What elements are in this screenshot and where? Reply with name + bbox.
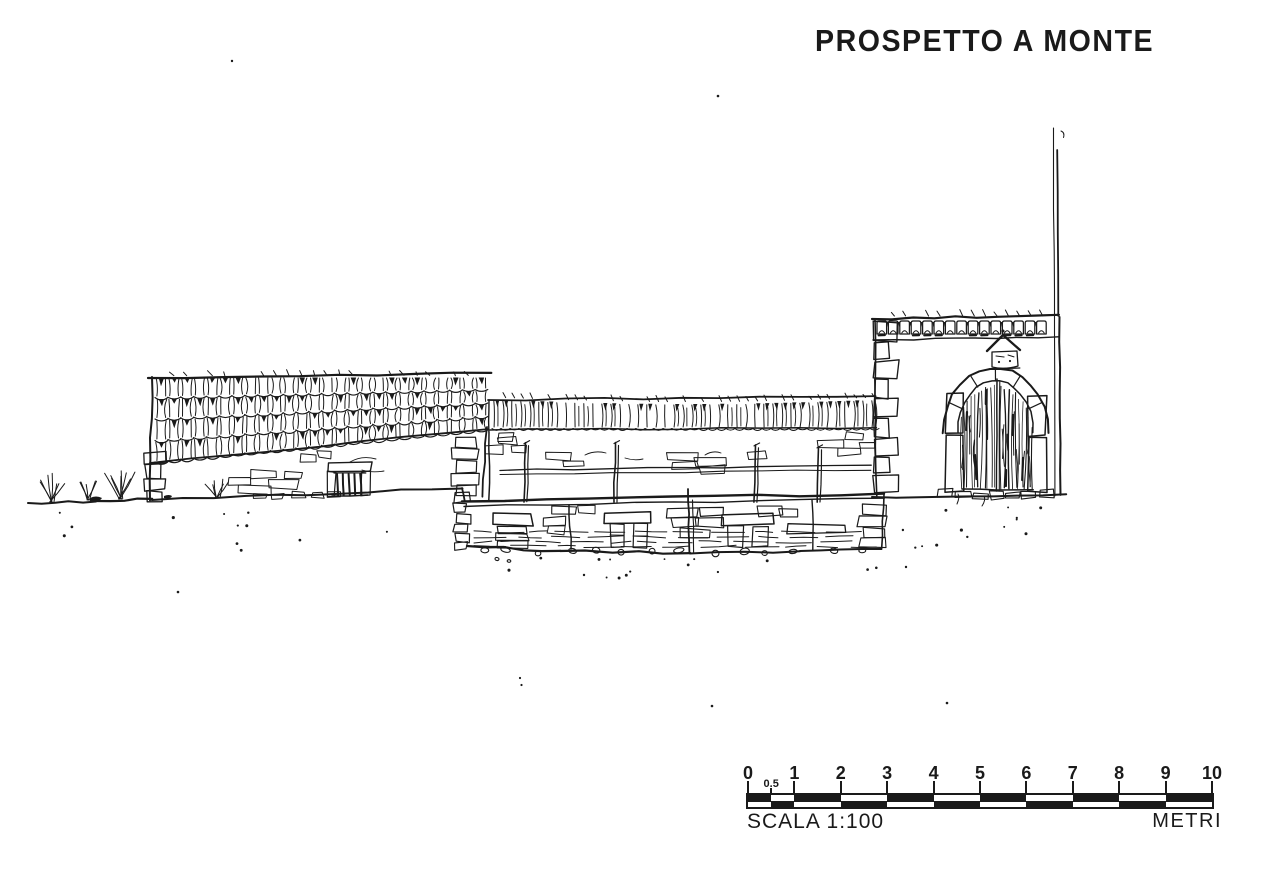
scale-tick-mark bbox=[933, 781, 935, 793]
sheet-background: PROSPETTO A MONTE SCALA 1:100 METRI 00 bbox=[0, 0, 1280, 883]
scale-bar-ruler bbox=[746, 793, 1214, 809]
scale-tick-mark bbox=[840, 781, 842, 793]
unit-label: METRI bbox=[1152, 810, 1222, 833]
scale-tick-mark bbox=[979, 781, 981, 793]
right-eaves-tiles bbox=[872, 310, 1059, 340]
arched-portal bbox=[943, 368, 1049, 492]
scale-tick-mark bbox=[793, 781, 795, 793]
scale-tick-mark bbox=[886, 781, 888, 793]
scale-label: SCALA 1:100 bbox=[747, 810, 884, 834]
middle-wing bbox=[453, 393, 887, 580]
terrace-fence bbox=[489, 432, 871, 502]
left-roof-tiles bbox=[148, 370, 491, 465]
pole bbox=[1054, 128, 1064, 496]
scale-tick-mark bbox=[1165, 781, 1167, 793]
barred-window bbox=[327, 462, 372, 497]
left-building bbox=[144, 370, 514, 502]
paper-specks bbox=[231, 60, 949, 708]
retaining-wall bbox=[453, 489, 887, 579]
middle-roof-tiles bbox=[488, 393, 879, 432]
scale-tick-mark bbox=[1072, 781, 1074, 793]
scale-tick-mark bbox=[1118, 781, 1120, 793]
right-wall bbox=[872, 317, 1066, 568]
scale-tick-mark bbox=[1025, 781, 1027, 793]
scale-bar: SCALA 1:100 METRI 00.512345678910 bbox=[738, 764, 1238, 834]
scale-tick-mark bbox=[747, 781, 749, 793]
ground-line bbox=[28, 488, 465, 593]
elevation-drawing bbox=[0, 0, 1280, 883]
scale-tick-mark bbox=[1211, 781, 1213, 793]
right-building bbox=[872, 310, 1066, 569]
